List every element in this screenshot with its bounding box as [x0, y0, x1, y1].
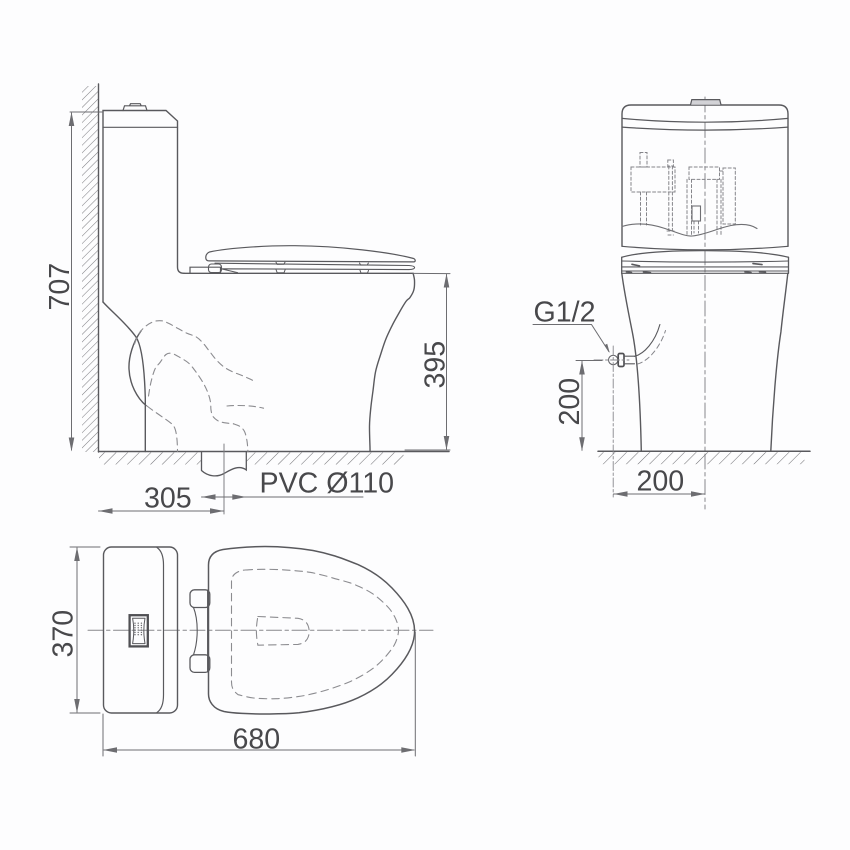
- svg-text:PVC Ø110: PVC Ø110: [260, 468, 395, 500]
- svg-text:395: 395: [420, 341, 452, 389]
- svg-text:200: 200: [554, 378, 586, 426]
- svg-text:707: 707: [44, 263, 76, 311]
- svg-text:370: 370: [48, 610, 80, 658]
- svg-text:G1/2: G1/2: [534, 297, 596, 329]
- svg-text:680: 680: [233, 724, 281, 756]
- svg-text:305: 305: [144, 483, 192, 515]
- svg-text:200: 200: [637, 466, 685, 498]
